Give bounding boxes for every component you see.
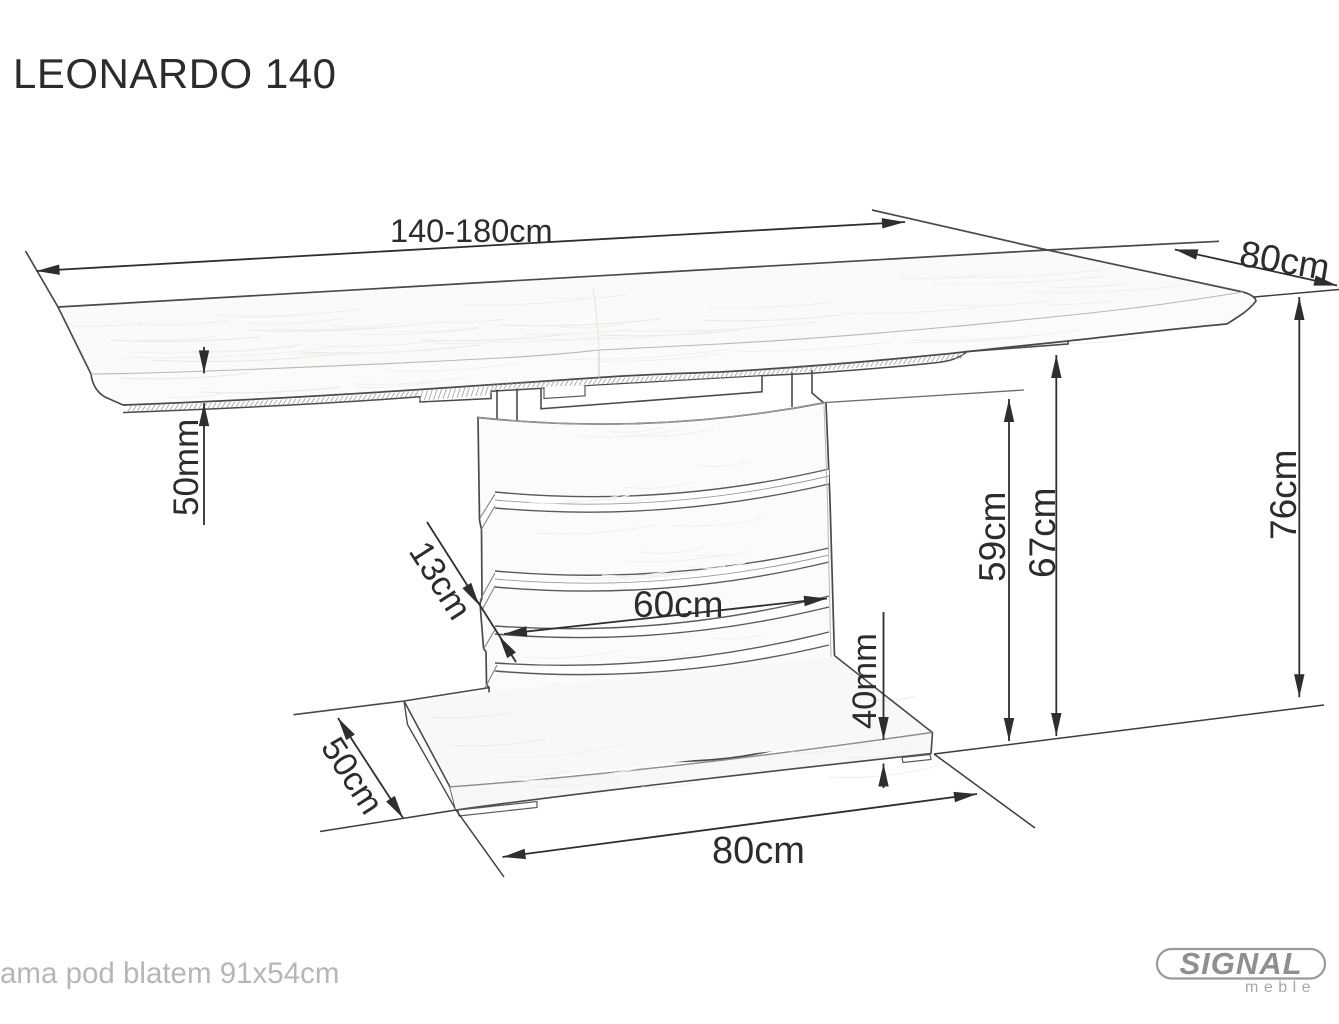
svg-text:140-180cm: 140-180cm (390, 213, 553, 249)
svg-text:SIGNAL: SIGNAL (1179, 946, 1302, 981)
svg-text:meble: meble (1245, 979, 1316, 996)
svg-text:67cm: 67cm (1022, 488, 1063, 578)
svg-text:59cm: 59cm (972, 492, 1013, 582)
svg-text:80cm: 80cm (712, 830, 805, 872)
svg-text:50mm: 50mm (167, 419, 206, 516)
svg-text:40mm: 40mm (846, 633, 884, 729)
svg-text:60cm: 60cm (633, 584, 723, 625)
svg-text:76cm: 76cm (1263, 450, 1304, 540)
svg-text:ama pod blatem 91x54cm: ama pod blatem 91x54cm (0, 957, 339, 990)
svg-text:LEONARDO 140: LEONARDO 140 (13, 50, 336, 97)
